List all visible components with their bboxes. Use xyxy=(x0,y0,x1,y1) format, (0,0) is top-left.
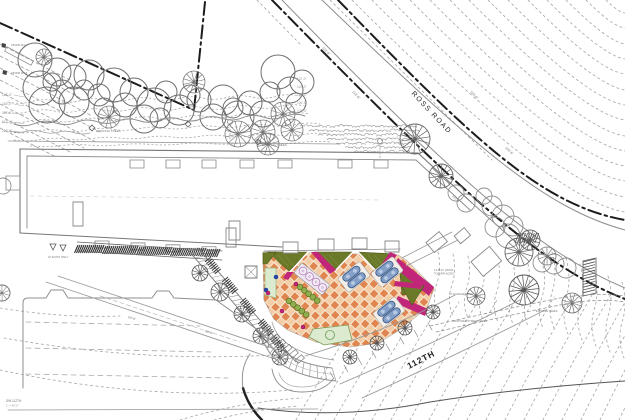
svg-text:LP EXIST ONLY: LP EXIST ONLY xyxy=(48,255,68,259)
svg-text:110'-0": 110'-0" xyxy=(2,129,13,133)
svg-text:118'-0": 118'-0" xyxy=(2,93,13,97)
svg-text:1" = 40'-0": 1" = 40'-0" xyxy=(6,404,19,408)
svg-text:104'-0": 104'-0" xyxy=(297,109,307,113)
svg-text:TO/DISPLACED): TO/DISPLACED) xyxy=(434,272,454,276)
svg-text:110'-0": 110'-0" xyxy=(297,85,307,89)
svg-text:CB RIM 116.2: CB RIM 116.2 xyxy=(11,43,28,47)
svg-text:112'-0": 112'-0" xyxy=(2,120,13,124)
svg-text:LA PLAY (MOVE: LA PLAY (MOVE xyxy=(434,268,454,272)
svg-text:108'-0": 108'-0" xyxy=(297,93,307,97)
svg-text:SW 112TH: SW 112TH xyxy=(6,399,22,403)
svg-text:112'-0": 112'-0" xyxy=(297,77,307,81)
svg-text:106'-0": 106'-0" xyxy=(297,101,307,105)
svg-text:116'-0": 116'-0" xyxy=(2,102,13,106)
svg-text:EXISTING TREES: EXISTING TREES xyxy=(262,143,287,147)
svg-text:114'-0": 114'-0" xyxy=(2,111,13,115)
svg-text:P.T.GARAGE ENTRY: P.T.GARAGE ENTRY xyxy=(449,292,474,296)
svg-text:EXISTING TREES: EXISTING TREES xyxy=(96,129,121,133)
svg-text:CB RIM 114.8: CB RIM 114.8 xyxy=(11,71,28,75)
